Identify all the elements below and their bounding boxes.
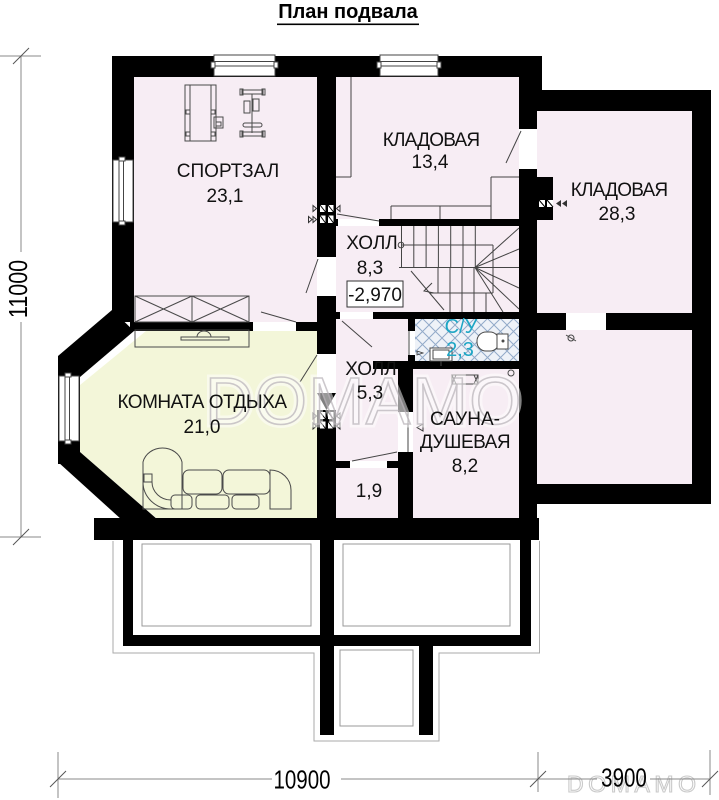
svg-text:ХОЛЛ: ХОЛЛ bbox=[346, 233, 398, 254]
svg-text:28,3: 28,3 bbox=[599, 204, 636, 225]
svg-text:13,4: 13,4 bbox=[412, 152, 449, 173]
svg-text:21,0: 21,0 bbox=[184, 417, 221, 438]
svg-text:ХОЛЛ: ХОЛЛ bbox=[345, 359, 397, 380]
svg-text:САУНА-: САУНА- bbox=[430, 409, 500, 430]
svg-text:1,9: 1,9 bbox=[356, 481, 382, 502]
svg-text:КЛАДОВАЯ: КЛАДОВАЯ bbox=[571, 180, 668, 201]
svg-text:С/У: С/У bbox=[445, 316, 478, 338]
svg-text:8,3: 8,3 bbox=[357, 258, 383, 279]
svg-text:КОМНАТА ОТДЫХА: КОМНАТА ОТДЫХА bbox=[117, 392, 287, 413]
svg-text:5,3: 5,3 bbox=[357, 383, 383, 404]
svg-text:СПОРТЗАЛ: СПОРТЗАЛ bbox=[177, 161, 279, 182]
svg-text:8,2: 8,2 bbox=[452, 456, 478, 477]
svg-text:План подвала: План подвала bbox=[278, 1, 418, 23]
svg-text:-2,970: -2,970 bbox=[348, 285, 402, 306]
svg-text:10900: 10900 bbox=[273, 765, 330, 794]
svg-text:23,1: 23,1 bbox=[207, 186, 244, 207]
svg-text:ДУШЕВАЯ: ДУШЕВАЯ bbox=[420, 432, 510, 453]
svg-text:КЛАДОВАЯ: КЛАДОВАЯ bbox=[383, 130, 480, 151]
svg-text:2,3: 2,3 bbox=[446, 339, 474, 361]
svg-text:3900: 3900 bbox=[601, 763, 647, 792]
svg-text:11000: 11000 bbox=[4, 260, 33, 318]
